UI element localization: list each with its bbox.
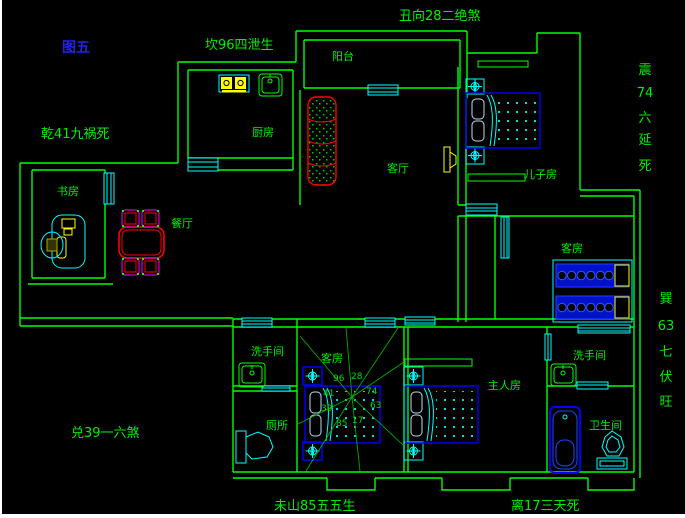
annotation-xun-char: 七 bbox=[659, 345, 672, 360]
compass-number: 28 bbox=[351, 372, 363, 382]
door-frame-icon bbox=[545, 334, 551, 360]
annotation-li: 离17三天死 bbox=[511, 498, 580, 514]
door-frame-icon bbox=[501, 217, 509, 258]
figure-title: 图五 bbox=[62, 40, 90, 56]
room-label-dining: 餐厅 bbox=[171, 216, 193, 230]
annotation-qian: 乾41九祸死 bbox=[41, 127, 110, 142]
window-icon bbox=[242, 318, 272, 327]
annotation-xun-char: 巽 bbox=[659, 292, 672, 307]
door-frame-icon bbox=[262, 386, 290, 391]
room-label-sons-room: 儿子房 bbox=[524, 168, 557, 181]
compass-number: 41 bbox=[323, 389, 334, 399]
compass-number: 63 bbox=[370, 401, 381, 411]
annotation-wei: 未山85五五生 bbox=[274, 499, 356, 514]
page-border-left bbox=[0, 0, 2, 518]
window-icon bbox=[578, 325, 630, 333]
room-label-living: 客厅 bbox=[387, 161, 409, 175]
room-label-study: 书房 bbox=[57, 185, 79, 198]
annotation-kan: 坎96四泄生 bbox=[205, 38, 274, 53]
door-frame-icon bbox=[104, 173, 114, 204]
window-icon bbox=[577, 382, 608, 389]
room-label-washroom-right: 洗手间 bbox=[573, 348, 606, 362]
window-icon bbox=[188, 158, 218, 171]
annotation-zhen-char: 延 bbox=[638, 133, 651, 148]
twin-bed-icon bbox=[556, 296, 629, 319]
room-label-balcony: 阳台 bbox=[332, 49, 354, 63]
floorplan-drawing: 96 28 41 74 39 63 85 17 阳台 厨房 客厅 儿子房 书房 … bbox=[0, 0, 685, 518]
plant-icon bbox=[308, 97, 336, 185]
window-icon bbox=[365, 318, 395, 327]
twin-bed-icon bbox=[556, 264, 629, 287]
annotation-zhen-char: 74 bbox=[637, 86, 654, 101]
room-label-kitchen: 厨房 bbox=[252, 126, 274, 139]
room-label-guest-center: 客房 bbox=[321, 351, 343, 365]
floorplan-canvas: 96 28 41 74 39 63 85 17 阳台 厨房 客厅 儿子房 书房 … bbox=[0, 0, 685, 518]
page-border-bottom bbox=[0, 514, 685, 518]
room-label-toilet: 厕所 bbox=[266, 419, 288, 432]
compass-number: 39 bbox=[321, 404, 333, 414]
window-icon bbox=[466, 204, 497, 215]
annotation-zhen-char: 死 bbox=[638, 159, 651, 174]
compass-number: 17 bbox=[352, 416, 363, 426]
annotation-dui: 兑39一六煞 bbox=[71, 426, 140, 441]
room-label-washroom-left: 洗手间 bbox=[251, 344, 284, 358]
compass-number: 85 bbox=[336, 419, 347, 429]
window-icon bbox=[368, 85, 398, 95]
annotation-top: 丑向28二绝煞 bbox=[399, 8, 481, 24]
annotation-xun-char: 伏 bbox=[659, 370, 672, 385]
room-label-master: 主人房 bbox=[488, 379, 521, 392]
annotation-xun-char: 旺 bbox=[659, 395, 672, 410]
annotation-zhen-char: 六 bbox=[638, 111, 651, 126]
annotation-xun-char: 63 bbox=[658, 319, 675, 334]
annotation-zhen-char: 震 bbox=[638, 63, 651, 78]
room-label-guest-right: 客房 bbox=[561, 241, 583, 255]
window-icon bbox=[405, 317, 435, 325]
room-label-bathroom: 卫生间 bbox=[589, 418, 622, 432]
compass-number: 74 bbox=[366, 387, 378, 397]
compass-number: 96 bbox=[333, 374, 345, 384]
